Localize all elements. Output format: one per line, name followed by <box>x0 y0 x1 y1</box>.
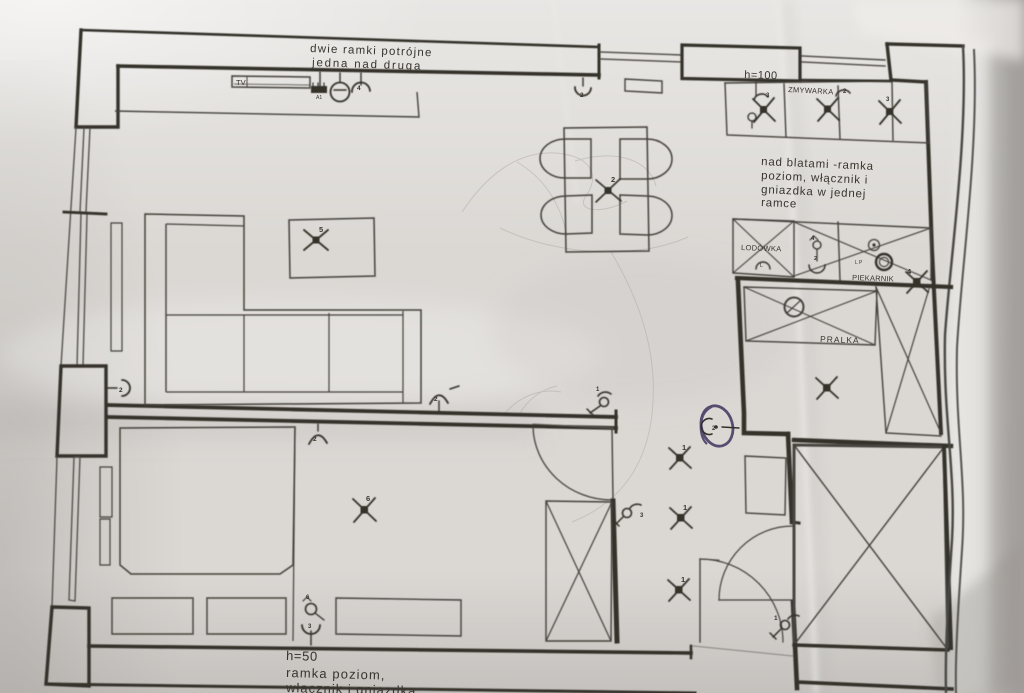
svg-text:TV: TV <box>236 78 246 87</box>
svg-text:A1: A1 <box>316 95 322 101</box>
svg-text:2: 2 <box>119 387 123 394</box>
svg-text:h=50: h=50 <box>286 648 318 664</box>
svg-text:L P: L P <box>855 260 863 266</box>
svg-text:LODÓWKA: LODÓWKA <box>741 243 782 253</box>
svg-text:5: 5 <box>319 225 323 234</box>
svg-text:PRALKA: PRALKA <box>820 334 860 345</box>
svg-text:PIEKARNIK: PIEKARNIK <box>852 273 894 283</box>
svg-text:h=100: h=100 <box>744 69 778 82</box>
svg-text:2: 2 <box>434 396 438 403</box>
svg-text:włącznik i gniazdka: włącznik i gniazdka <box>285 680 417 693</box>
svg-text:1: 1 <box>681 575 685 584</box>
svg-text:ramce: ramce <box>761 197 797 211</box>
svg-text:2: 2 <box>814 256 817 262</box>
svg-text:6: 6 <box>366 494 370 503</box>
svg-text:1: 1 <box>682 443 686 452</box>
svg-text:1: 1 <box>774 615 778 622</box>
svg-text:L: L <box>760 263 763 269</box>
svg-text:1: 1 <box>683 503 687 512</box>
svg-text:4: 4 <box>357 85 361 92</box>
svg-text:2: 2 <box>313 436 317 443</box>
svg-text:2: 2 <box>611 175 615 184</box>
svg-text:2: 2 <box>580 92 584 99</box>
